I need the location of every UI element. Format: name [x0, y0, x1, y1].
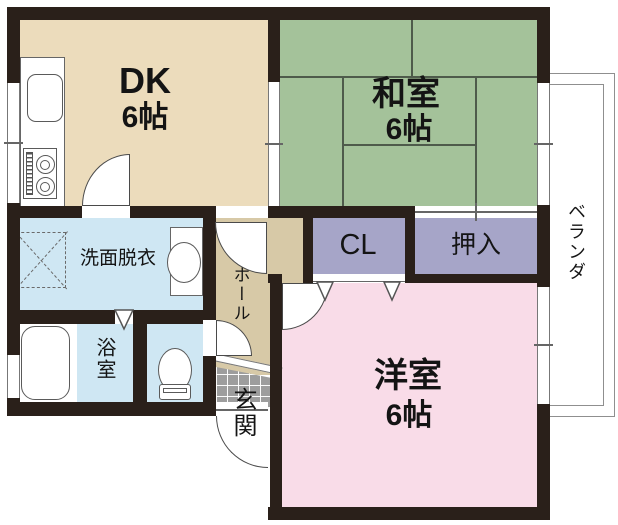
room-label-oshiire: 押入	[444, 231, 508, 259]
wall	[7, 402, 203, 416]
tatami-line	[475, 77, 477, 206]
wall	[268, 274, 282, 283]
wall	[7, 206, 82, 218]
wall	[303, 218, 313, 283]
veranda-label: ベランダ	[564, 200, 588, 284]
wall	[7, 203, 20, 310]
wall	[270, 283, 282, 520]
wall	[7, 310, 115, 324]
room-label-youshitsu: 洋室	[350, 358, 466, 394]
stove-grill	[26, 152, 33, 195]
wall	[268, 206, 415, 218]
wall	[203, 356, 216, 416]
sliding-door-tick	[475, 203, 477, 221]
hall-label: ホール	[228, 263, 252, 325]
bathtub	[21, 326, 70, 400]
kitchen-sink	[27, 74, 63, 122]
window-tick	[265, 143, 283, 145]
window-tick	[534, 344, 553, 346]
room-label-cl: CL	[330, 229, 386, 261]
wall	[133, 324, 147, 402]
window-tick	[534, 143, 553, 145]
wall	[7, 20, 20, 83]
wall	[268, 507, 550, 520]
room-size-youshitsu: 6帖	[366, 399, 452, 433]
toilet-tank-line	[163, 388, 187, 393]
genkan-label: 玄関	[227, 383, 257, 443]
wall	[133, 310, 203, 324]
room-youshitsu	[282, 283, 537, 507]
doorway	[203, 320, 216, 356]
wall	[268, 7, 280, 82]
wall	[405, 274, 550, 283]
wall	[537, 404, 550, 520]
folding-door-marker	[316, 281, 334, 302]
wall	[537, 7, 550, 83]
room-label-dk: DK	[95, 62, 195, 100]
room-size-washitsu: 6帖	[366, 113, 452, 147]
folding-door-marker	[383, 281, 401, 302]
room-label-yokushitsu: 浴室	[92, 329, 116, 389]
doorway	[216, 206, 268, 218]
washbasin-bowl	[167, 242, 201, 283]
room-label-senmen-datsui: 洗面脱衣	[68, 247, 168, 269]
burner	[40, 182, 50, 192]
doorway	[82, 206, 130, 218]
burner	[40, 160, 50, 170]
folding-door-marker	[114, 309, 134, 331]
window-tick	[4, 142, 23, 144]
window	[7, 355, 20, 398]
room-size-dk: 6帖	[95, 101, 195, 135]
room-label-washitsu: 和室	[348, 76, 464, 112]
window	[537, 287, 550, 404]
tatami-line	[411, 20, 413, 77]
floor-plan: DK 6帖 和室 6帖 洋室 6帖 CL 押入 洗面脱衣 浴室 ホール 玄関 ベ…	[0, 0, 618, 525]
tatami-line	[342, 77, 344, 206]
